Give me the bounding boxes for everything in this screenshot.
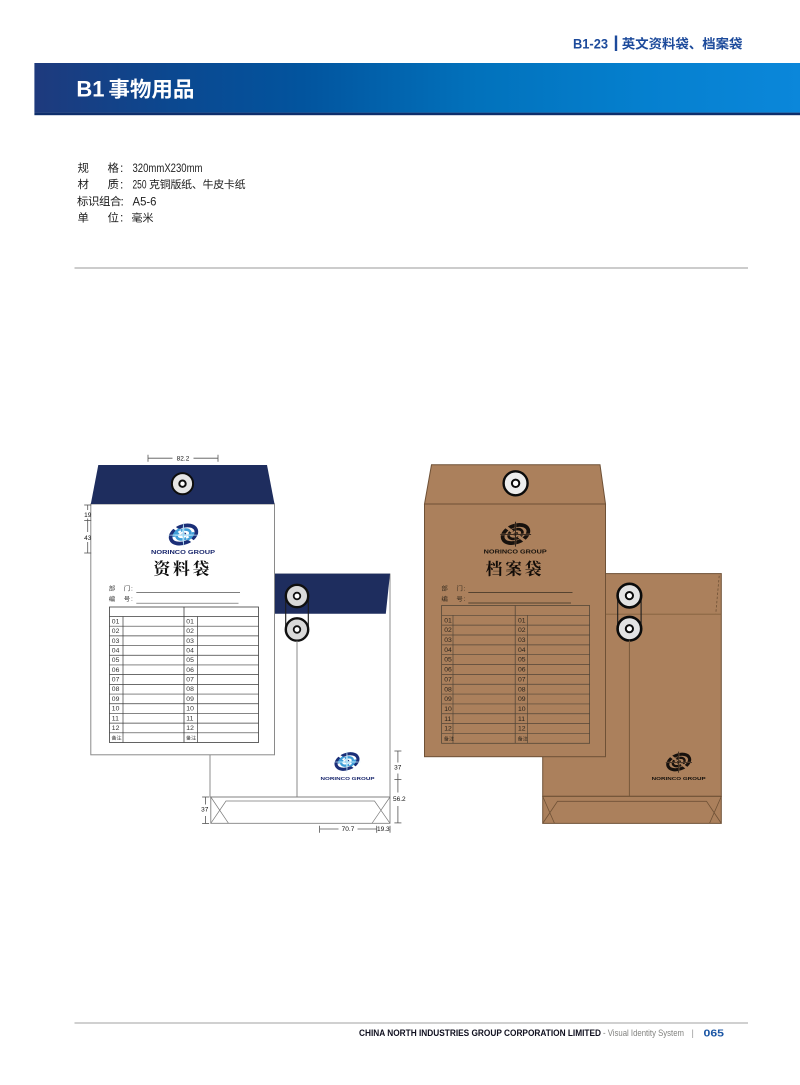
svg-text:10: 10	[518, 706, 526, 713]
svg-text:06: 06	[444, 667, 452, 674]
svg-text:82.2: 82.2	[177, 456, 190, 463]
svg-text:320mmX230mm: 320mmX230mm	[133, 161, 203, 175]
svg-text:A5-6: A5-6	[133, 194, 157, 208]
svg-text:03: 03	[186, 638, 194, 645]
svg-text:10: 10	[186, 706, 194, 713]
svg-text:12: 12	[186, 725, 194, 732]
svg-text:56.2: 56.2	[393, 796, 406, 803]
svg-text::: :	[121, 194, 124, 208]
svg-text:12: 12	[518, 726, 526, 733]
svg-text:08: 08	[186, 686, 194, 693]
svg-text:11: 11	[186, 715, 193, 722]
svg-text:05: 05	[518, 657, 526, 664]
svg-text:01: 01	[186, 618, 194, 625]
svg-text::: :	[120, 161, 123, 175]
svg-text::: :	[464, 596, 466, 603]
svg-text:09: 09	[518, 696, 526, 703]
svg-text:05: 05	[186, 657, 194, 664]
svg-text::: :	[131, 586, 133, 593]
svg-text:NORINCO GROUP: NORINCO GROUP	[652, 776, 706, 781]
svg-text:08: 08	[518, 686, 526, 693]
svg-text:19.3: 19.3	[377, 826, 390, 833]
svg-text:04: 04	[112, 647, 120, 654]
svg-text:08: 08	[112, 686, 120, 693]
svg-text:09: 09	[186, 696, 194, 703]
svg-text:70.7: 70.7	[342, 826, 355, 833]
svg-text:09: 09	[112, 696, 120, 703]
svg-text:04: 04	[518, 647, 526, 654]
svg-text:10: 10	[444, 706, 452, 713]
svg-text::: :	[131, 596, 133, 603]
svg-text:03: 03	[518, 637, 526, 644]
svg-text:|: |	[692, 1028, 694, 1038]
svg-text:06: 06	[518, 667, 526, 674]
svg-text:11: 11	[112, 715, 119, 722]
svg-text:B1: B1	[76, 77, 104, 102]
svg-text:43: 43	[84, 535, 92, 542]
svg-text:02: 02	[112, 628, 120, 635]
svg-text::: :	[464, 586, 466, 593]
svg-text:NORINCO GROUP: NORINCO GROUP	[151, 550, 216, 556]
svg-text:03: 03	[444, 637, 452, 644]
svg-text:250: 250	[133, 177, 147, 191]
svg-text:CHINA NORTH INDUSTRIES GROUP C: CHINA NORTH INDUSTRIES GROUP CORPORATION…	[359, 1027, 601, 1038]
svg-text:02: 02	[444, 627, 452, 634]
svg-text:12: 12	[112, 725, 120, 732]
svg-text:B1-23: B1-23	[573, 37, 608, 53]
svg-text:02: 02	[186, 628, 194, 635]
svg-text:07: 07	[186, 677, 194, 684]
svg-text:06: 06	[112, 667, 120, 674]
svg-text:08: 08	[444, 686, 452, 693]
svg-text:11: 11	[518, 716, 525, 723]
svg-text:09: 09	[444, 696, 452, 703]
svg-text:06: 06	[186, 667, 194, 674]
svg-text:37: 37	[201, 807, 209, 814]
svg-text:01: 01	[444, 617, 452, 624]
svg-text:065: 065	[704, 1029, 725, 1040]
svg-text:37: 37	[394, 765, 402, 772]
svg-text:11: 11	[444, 716, 451, 723]
svg-text:01: 01	[518, 617, 526, 624]
svg-text:05: 05	[444, 657, 452, 664]
svg-text:- Visual Identity System: - Visual Identity System	[603, 1028, 684, 1038]
svg-text:NORINCO GROUP: NORINCO GROUP	[484, 550, 548, 556]
svg-text::: :	[120, 177, 123, 191]
svg-text:19: 19	[84, 512, 92, 519]
svg-text:12: 12	[444, 726, 452, 733]
svg-text:05: 05	[112, 657, 120, 664]
svg-text:NORINCO GROUP: NORINCO GROUP	[321, 776, 375, 781]
svg-text:01: 01	[112, 618, 120, 625]
svg-text:10: 10	[112, 706, 120, 713]
svg-text::: :	[120, 211, 123, 225]
svg-text:07: 07	[112, 677, 120, 684]
svg-text:07: 07	[444, 676, 452, 683]
svg-text:07: 07	[518, 676, 526, 683]
svg-text:02: 02	[518, 627, 526, 634]
svg-text:04: 04	[444, 647, 452, 654]
svg-text:03: 03	[112, 638, 120, 645]
svg-text:04: 04	[186, 647, 194, 654]
